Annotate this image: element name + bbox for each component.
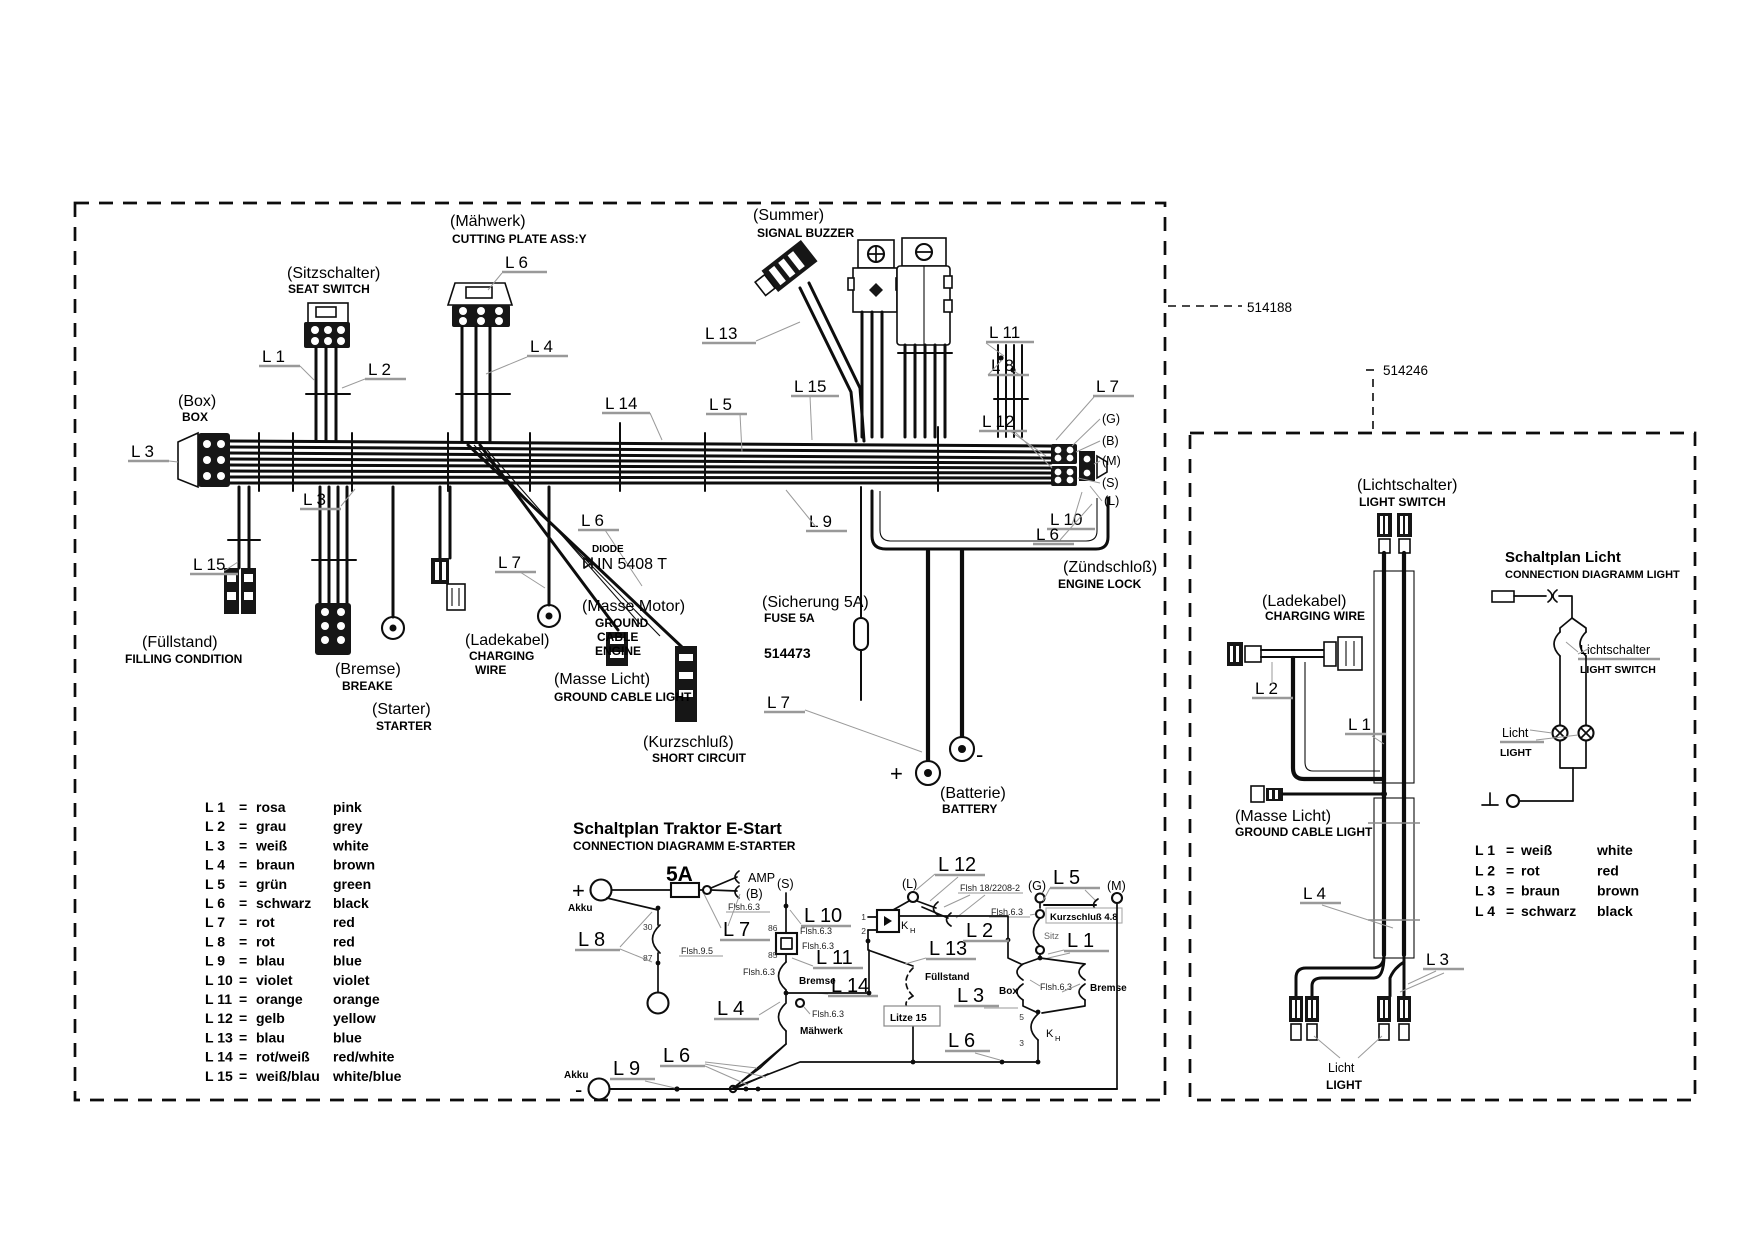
wire-label: L 6 xyxy=(581,511,604,530)
box-connector xyxy=(178,433,230,487)
flsh-label: Flsh.6.3 xyxy=(728,902,760,912)
legend-eq: = xyxy=(239,818,247,834)
legend-eq: = xyxy=(1506,903,1514,919)
m-terminal: (M) xyxy=(1107,879,1126,893)
legend-en: red xyxy=(333,914,355,930)
device-label-de: (Masse Licht) xyxy=(1235,808,1331,825)
legend-row: L 3 = weiß white xyxy=(205,837,369,853)
licht-label-en: LIGHT xyxy=(1500,747,1532,759)
legend-code: L 2 xyxy=(1475,862,1495,878)
legend-row: L 1 = weiß white xyxy=(1475,842,1633,858)
legend-row: L 6 = schwarz black xyxy=(205,895,369,911)
legend-row: L 2 = grau grey xyxy=(205,818,363,834)
device-label-en: STARTER xyxy=(376,719,432,733)
legend-code: L 12 xyxy=(205,1010,233,1026)
legend-en: orange xyxy=(333,991,380,1007)
s-terminal: (S) xyxy=(777,877,794,891)
device-label-en: LIGHT xyxy=(1326,1078,1363,1092)
device-label-de: (Sitzschalter) xyxy=(287,265,380,282)
legend-de: weiß xyxy=(1520,842,1553,858)
akku-label: Akku xyxy=(564,1070,588,1081)
device-label-de: (Masse Licht) xyxy=(554,671,650,688)
switch-name: Füllstand xyxy=(925,972,969,983)
wire-label: L 1 xyxy=(262,347,285,366)
legend-eq: = xyxy=(1506,842,1514,858)
wire-label: L 12 xyxy=(982,412,1014,431)
diagram-canvas: 514188 514246 xyxy=(0,0,1755,1241)
legend-code: L 8 xyxy=(205,933,225,949)
legend-eq: = xyxy=(239,1029,247,1045)
device-label-en: GROUND CABLE LIGHT xyxy=(554,690,692,704)
legend-row: L 4 = braun brown xyxy=(205,857,375,873)
wire-label: L 13 xyxy=(929,938,967,960)
legend-eq: = xyxy=(239,799,247,815)
estart-schematic: Schaltplan Traktor E-Start CONNECTION DI… xyxy=(564,819,1127,1102)
estart-title: Schaltplan Traktor E-Start xyxy=(573,819,782,838)
legend-en: blue xyxy=(333,1029,362,1045)
legend-en: brown xyxy=(333,857,375,873)
legend-eq: = xyxy=(1506,862,1514,878)
legend-eq: = xyxy=(239,1010,247,1026)
device-label-de: (Ladekabel) xyxy=(1262,593,1347,610)
flsh-label: Flsh.6.3 xyxy=(743,967,775,977)
ignition-terminal: (L) xyxy=(1104,494,1119,508)
legend-de: schwarz xyxy=(1521,903,1576,919)
device-label-de: (Summer) xyxy=(753,207,824,224)
device-label-de: (Sicherung 5A) xyxy=(762,594,869,611)
charging-wire-connector-main xyxy=(431,487,465,610)
device-label-de: (Kurzschluß) xyxy=(643,734,734,751)
legend-eq: = xyxy=(239,972,247,988)
switch-name: Box xyxy=(999,986,1018,997)
wire-label: L 4 xyxy=(1303,884,1326,903)
switch-label-de: Lichtschalter xyxy=(1580,643,1650,657)
wire-label: L 5 xyxy=(1053,867,1080,889)
battery-plus: + xyxy=(890,761,903,786)
device-label-en: BATTERY xyxy=(942,802,997,816)
legend-de: weiß/blau xyxy=(255,1068,320,1084)
ground-cable-light-plug xyxy=(1251,786,1283,802)
flsh-label: Flsh.6.3 xyxy=(812,1009,844,1019)
ignition-terminal: (B) xyxy=(1102,434,1119,448)
legend-code: L 9 xyxy=(205,953,225,969)
legend-de: violet xyxy=(256,972,293,988)
legend-de: blau xyxy=(256,953,285,969)
device-label-de: (Batterie) xyxy=(940,785,1006,802)
legend-eq: = xyxy=(239,914,247,930)
legend-eq: = xyxy=(239,1068,247,1084)
terminal-2: 2 xyxy=(861,926,866,936)
legend-de: rot/weiß xyxy=(256,1049,310,1065)
wire-label: L 6 xyxy=(948,1030,975,1052)
seat-switch-connector xyxy=(304,303,350,441)
legend-code: L 1 xyxy=(1475,842,1495,858)
wire-label: L 7 xyxy=(767,693,790,712)
legend-de: rot xyxy=(256,914,275,930)
switch-name: Mähwerk xyxy=(800,1026,843,1037)
device-label-de: (Füllstand) xyxy=(142,634,218,651)
flsh-label: Flsh.9.5 xyxy=(681,946,713,956)
wire-label: L 7 xyxy=(498,553,521,572)
wire-label: L 3 xyxy=(303,490,326,509)
wire-label: L 6 xyxy=(505,253,528,272)
legend-light-rows: L 1 = weiß white L 2 = rot red L 3 = bra… xyxy=(1475,842,1639,919)
legend-eq: = xyxy=(239,933,247,949)
legend-code: L 10 xyxy=(205,972,233,988)
device-label-en: GROUND CABLE LIGHT xyxy=(1235,825,1373,839)
legend-eq: = xyxy=(239,991,247,1007)
legend-row: L 14 = rot/weiß red/white xyxy=(205,1049,395,1065)
legend-en: red xyxy=(1597,862,1619,878)
switch-name: Sitz xyxy=(1044,931,1060,941)
legend-main-rows: L 1 = rosa pink L 2 = grau grey L 3 = we… xyxy=(205,799,402,1084)
ground-cable-engine-lug xyxy=(538,487,560,627)
legend-eq: = xyxy=(1506,883,1514,899)
light-switch-plugs xyxy=(1377,513,1412,553)
wire-label: L 6 xyxy=(663,1045,690,1067)
legend-de: schwarz xyxy=(256,895,311,911)
legend-de: weiß xyxy=(255,837,288,853)
device-label-en: BOX xyxy=(182,410,208,424)
part-number-main: 514188 xyxy=(1247,300,1292,315)
wire-label: L 12 xyxy=(938,854,976,876)
legend-main: L 1 = rosa pink L 2 = grau grey L 3 = we… xyxy=(205,799,402,1084)
legend-code: L 15 xyxy=(205,1068,233,1084)
wire-label: L 3 xyxy=(1426,950,1449,969)
legend-code: L 3 xyxy=(1475,883,1495,899)
light-plan-title: Schaltplan Licht xyxy=(1505,549,1621,566)
device-label-de: (Ladekabel) xyxy=(465,632,550,649)
terminal-86: 86 xyxy=(768,923,778,933)
legend-code: L 14 xyxy=(205,1049,233,1065)
amp-terminal: AMP xyxy=(748,871,775,885)
diode-label: DIODE xyxy=(592,544,624,555)
device-label-en: CHARGING WIRE xyxy=(1265,609,1365,623)
wire-label: L 9 xyxy=(809,512,832,531)
part-number-light: 514246 xyxy=(1383,363,1428,378)
device-label-de: (Starter) xyxy=(372,701,431,718)
legend-de: braun xyxy=(1521,883,1560,899)
device-label-de: Licht xyxy=(1328,1061,1355,1075)
brake-connector xyxy=(315,487,351,655)
terminal-30: 30 xyxy=(643,922,653,932)
ignition-terminal: (S) xyxy=(1102,476,1119,490)
wire-label: L 7 xyxy=(723,919,750,941)
wire-label: L 11 xyxy=(989,323,1020,342)
legend-row: L 2 = rot red xyxy=(1475,862,1619,878)
legend-en: brown xyxy=(1597,883,1639,899)
relay-name-k: K xyxy=(901,920,909,932)
legend-row: L 1 = rosa pink xyxy=(205,799,362,815)
device-label-en: FUSE 5A xyxy=(764,611,815,625)
legend-de: rosa xyxy=(256,799,286,815)
relay-name-h: H xyxy=(910,926,915,935)
legend-de: grün xyxy=(256,876,287,892)
legend-en: violet xyxy=(333,972,370,988)
device-label-de: (Box) xyxy=(178,393,216,410)
akku-plus: + xyxy=(572,878,585,903)
wire-label: L 8 xyxy=(991,356,1014,375)
legend-eq: = xyxy=(239,1049,247,1065)
legend-en: black xyxy=(333,895,369,911)
diode-part: IN 5408 T xyxy=(597,556,667,573)
legend-en: pink xyxy=(333,799,362,815)
starter-lug xyxy=(382,487,404,639)
legend-en: grey xyxy=(333,818,363,834)
device-label-de: (Bremse) xyxy=(335,661,401,678)
wire-label: L 5 xyxy=(709,395,732,414)
kurzschluss-48: Kurzschluß 4.8 xyxy=(1050,912,1118,923)
legend-en: white xyxy=(1596,842,1633,858)
legend-code: L 5 xyxy=(205,876,225,892)
legend-de: rot xyxy=(256,933,275,949)
legend-en: green xyxy=(333,876,371,892)
device-label-de: (Zündschloß) xyxy=(1063,559,1157,576)
legend-eq: = xyxy=(239,837,247,853)
wire-label: L 8 xyxy=(578,929,605,951)
light-harness-panel-border xyxy=(1190,433,1695,1100)
legend-code: L 11 xyxy=(205,991,232,1007)
wiring-diagram-page: 514188 514246 xyxy=(0,0,1755,1241)
wire-label: L 2 xyxy=(1255,679,1278,698)
device-label-de: (Mähwerk) xyxy=(450,213,526,230)
flsh-label: Flsh 18/2208-2 xyxy=(960,883,1020,893)
legend-code: L 4 xyxy=(1475,903,1495,919)
wire-label: L 1 xyxy=(1067,930,1094,952)
device-label-en: CABLE xyxy=(597,630,638,644)
legend-eq: = xyxy=(239,895,247,911)
legend-en: blue xyxy=(333,953,362,969)
wire-label: L 3 xyxy=(131,442,154,461)
legend-code: L 6 xyxy=(205,895,225,911)
legend-row: L 13 = blau blue xyxy=(205,1029,362,1045)
wire-label: L 2 xyxy=(368,360,391,379)
l-terminal: (L) xyxy=(902,877,917,891)
relay-name-h: H xyxy=(1055,1034,1060,1043)
legend-de: rot xyxy=(1521,862,1540,878)
device-label-en: BREAKE xyxy=(342,679,393,693)
legend-code: L 4 xyxy=(205,857,225,873)
legend-code: L 3 xyxy=(205,837,225,853)
legend-row: L 8 = rot red xyxy=(205,933,355,949)
wire-label: L 4 xyxy=(717,998,744,1020)
litze-label: Litze 15 xyxy=(890,1013,927,1024)
ignition-terminal: (G) xyxy=(1102,412,1120,426)
legend-de: gelb xyxy=(256,1010,285,1026)
legend-row: L 11 = orange orange xyxy=(205,991,380,1007)
legend-code: L 1 xyxy=(205,799,225,815)
wire-label: L 6 xyxy=(1036,525,1059,544)
legend-eq: = xyxy=(239,876,247,892)
device-label-en: GROUND xyxy=(595,616,649,630)
g-terminal: (G) xyxy=(1028,879,1046,893)
device-label-en: SIGNAL BUZZER xyxy=(757,226,854,240)
wire-label: L 3 xyxy=(957,985,984,1007)
device-label-en: LIGHT SWITCH xyxy=(1359,495,1446,509)
terminal-3: 3 xyxy=(1019,1038,1024,1048)
estart-subtitle: CONNECTION DIAGRAMM E-STARTER xyxy=(573,839,796,853)
wire-label: L 13 xyxy=(705,324,737,343)
legend-row: L 3 = braun brown xyxy=(1475,883,1639,899)
wire-label: L 2 xyxy=(966,920,993,942)
legend-de: orange xyxy=(256,991,303,1007)
main-harness-labels: (Mähwerk) CUTTING PLATE ASS:Y L 6 (Sitzs… xyxy=(125,207,1157,816)
device-label-en: WIRE xyxy=(475,663,506,677)
terminal-1: 1 xyxy=(861,912,866,922)
b-terminal: (B) xyxy=(746,887,763,901)
light-connectors xyxy=(1289,996,1411,1040)
legend-code: L 13 xyxy=(205,1029,233,1045)
battery-cables xyxy=(916,551,974,785)
switch-name: Bremse xyxy=(1090,983,1127,994)
device-label-en: SEAT SWITCH xyxy=(288,282,370,296)
legend-row: L 7 = rot red xyxy=(205,914,355,930)
ignition-terminal: (M) xyxy=(1102,454,1121,468)
terminal-5: 5 xyxy=(1019,1012,1024,1022)
device-label-en: CHARGING xyxy=(469,649,534,663)
legend-eq: = xyxy=(239,857,247,873)
device-label-en: ENGINE xyxy=(595,644,641,658)
wire-label: L 9 xyxy=(613,1058,640,1080)
device-label-de: (Lichtschalter) xyxy=(1357,477,1457,494)
wire-label: L 1 xyxy=(1348,715,1371,734)
legend-row: L 5 = grün green xyxy=(205,876,371,892)
legend-code: L 7 xyxy=(205,914,225,930)
device-label-en: CUTTING PLATE ASS:Y xyxy=(452,232,587,246)
filling-condition-connector xyxy=(224,487,256,614)
wire-label: L 7 xyxy=(1096,377,1119,396)
wire-label: L 15 xyxy=(193,555,225,574)
legend-en: black xyxy=(1597,903,1633,919)
akku-label: Akku xyxy=(568,903,592,914)
legend-code: L 2 xyxy=(205,818,225,834)
light-harness-drawing: (Lichtschalter) LIGHT SWITCH (Ladekabel)… xyxy=(1227,477,1464,1092)
legend-en: white/blue xyxy=(332,1068,402,1084)
battery-minus: - xyxy=(976,742,983,767)
legend-en: red/white xyxy=(333,1049,395,1065)
device-label-en: FILLING CONDITION xyxy=(125,652,242,666)
short-circuit-plug xyxy=(675,646,697,722)
relay-name-k: K xyxy=(1046,1028,1054,1040)
legend-en: white xyxy=(332,837,369,853)
flsh-label: Flsh.6.3 xyxy=(800,926,832,936)
legend-eq: = xyxy=(239,953,247,969)
wire-label: L 10 xyxy=(804,905,842,927)
light-schematic: Schaltplan Licht CONNECTION DIAGRAMM LIG… xyxy=(1475,549,1680,919)
switch-label-en: LIGHT SWITCH xyxy=(1580,664,1656,676)
terminal-85: 85 xyxy=(768,950,778,960)
legend-en: yellow xyxy=(333,1010,376,1026)
fuse-part-number: 514473 xyxy=(764,645,811,661)
legend-row: L 4 = schwarz black xyxy=(1475,903,1633,919)
wire-label: L 11 xyxy=(816,947,853,969)
legend-de: blau xyxy=(256,1029,285,1045)
legend-row: L 9 = blau blue xyxy=(205,953,362,969)
legend-de: grau xyxy=(256,818,286,834)
legend-row: L 10 = violet violet xyxy=(205,972,370,988)
legend-en: red xyxy=(333,933,355,949)
device-label-en: SHORT CIRCUIT xyxy=(652,751,747,765)
wire-label: L 4 xyxy=(530,337,553,356)
device-label-de: (Masse Motor) xyxy=(582,598,685,615)
device-label-en: ENGINE LOCK xyxy=(1058,577,1142,591)
licht-label-de: Licht xyxy=(1502,726,1529,740)
legend-de: braun xyxy=(256,857,295,873)
legend-row: L 12 = gelb yellow xyxy=(205,1010,376,1026)
signal-buzzer-connector xyxy=(752,240,864,441)
wire-label: L 14 xyxy=(605,394,637,413)
light-plan-subtitle: CONNECTION DIAGRAMM LIGHT xyxy=(1505,569,1680,581)
legend-row: L 15 = weiß/blau white/blue xyxy=(205,1068,402,1084)
flsh-label: Flsh.6.3 xyxy=(1040,982,1072,992)
wire-label: L 15 xyxy=(794,377,826,396)
